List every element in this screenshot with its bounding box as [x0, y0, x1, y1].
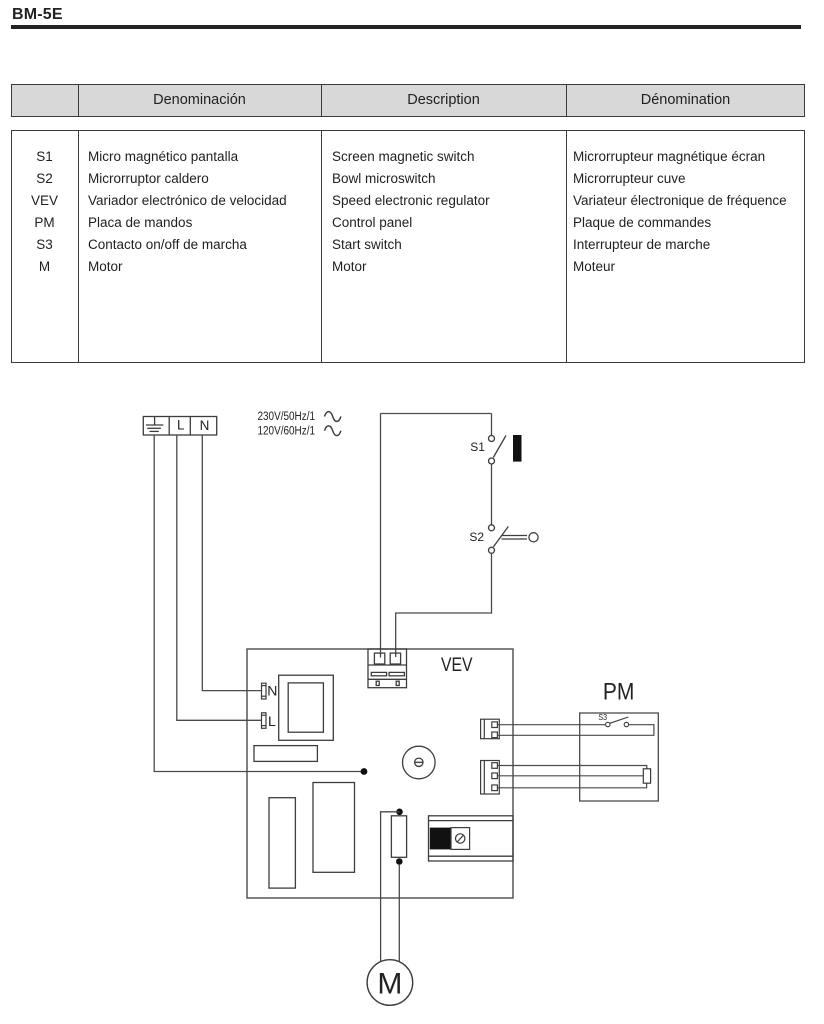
svg-text:L: L: [268, 713, 276, 729]
svg-text:120V/60Hz/1: 120V/60Hz/1: [258, 426, 316, 438]
svg-text:L: L: [177, 418, 185, 433]
svg-text:VEV: VEV: [441, 655, 473, 676]
svg-text:S1: S1: [470, 440, 485, 454]
svg-text:S2: S2: [469, 530, 484, 544]
svg-text:N: N: [267, 682, 277, 698]
svg-text:M: M: [377, 967, 402, 1000]
svg-text:PM: PM: [603, 679, 635, 706]
svg-text:N: N: [200, 418, 210, 433]
svg-text:230V/50Hz/1: 230V/50Hz/1: [258, 411, 316, 423]
svg-text:S3: S3: [598, 712, 607, 722]
